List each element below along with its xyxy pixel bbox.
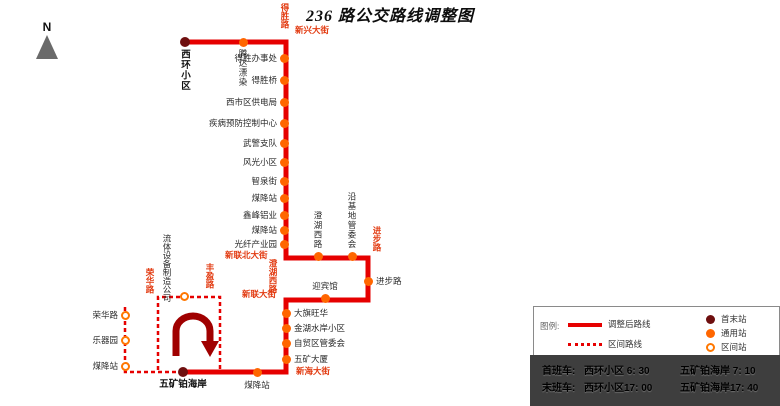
station-label: 煤降站 (251, 225, 277, 235)
station-label: 煤降站 (92, 361, 118, 371)
station-dot (280, 139, 289, 148)
station-dot (282, 309, 291, 318)
legend-item-adjusted-route: 调整后路线 (568, 318, 651, 330)
station-dot (280, 119, 289, 128)
terminal-station-dot-icon (706, 315, 715, 324)
station-dot (280, 76, 289, 85)
station-dot (280, 211, 289, 220)
station-label: 西市区供电局 (226, 97, 277, 107)
station-label: 澄湖西路 (312, 211, 323, 249)
street-label: 新兴大街 (295, 25, 329, 35)
legend-label-section-route: 区间路线 (608, 339, 642, 349)
station-dot (282, 355, 291, 364)
legend-label-terminal-station: 首末站 (721, 314, 747, 324)
station-label: 光纤产业园 (234, 239, 277, 249)
legend-label-general-station: 通用站 (721, 328, 747, 338)
legend-label-adjusted-route: 调整后路线 (608, 319, 651, 329)
last-bus-label: 末班车: (542, 379, 584, 394)
station-dot (178, 367, 188, 377)
station-label: 疾病预防控制中心 (209, 118, 277, 128)
station-label: 智泉街 (251, 176, 277, 186)
street-label: 得胜路 (280, 3, 290, 29)
legend-item-terminal-station: 首末站 (706, 313, 747, 325)
uturn-arrow-icon (176, 316, 210, 356)
station-dot (314, 252, 323, 261)
route-map-canvas: 236 路公交路线调整图 N 得胜路新兴大街新联北大街澄湖西路进步路新联大街新海… (0, 0, 780, 406)
station-label: 鑫峰铝业 (243, 210, 277, 220)
station-dot (348, 252, 357, 261)
station-label: 沿基地管委会 (346, 192, 357, 249)
station-label: 五矿铂海岸 (123, 380, 243, 390)
station-label: 金湖水岸小区 (294, 323, 345, 333)
station-dot (121, 362, 130, 371)
station-dot (282, 324, 291, 333)
street-label: 新海大街 (296, 366, 330, 376)
station-dot (280, 177, 289, 186)
station-dot (121, 336, 130, 345)
station-dot (280, 194, 289, 203)
legend-title: 图例: (540, 320, 559, 332)
station-label: 自贸区管委会 (294, 338, 345, 348)
timetable: 首班车: 西环小区 6: 30 五矿铂海岸 7: 10 末班车: 西环小区17:… (530, 355, 780, 406)
station-label: 得胜桥 (251, 75, 277, 85)
timetable-row-first-bus: 首班车: 西环小区 6: 30 五矿铂海岸 7: 10 (542, 362, 780, 377)
first-bus-west-time: 西环小区 6: 30 (584, 362, 680, 377)
street-label: 进步路 (372, 226, 382, 252)
station-label: 大旗旺华 (294, 308, 328, 318)
station-label: 风光小区 (243, 157, 277, 167)
station-label: 西环小区 (179, 49, 190, 91)
station-dot (280, 226, 289, 235)
station-label: 荣华路 (92, 310, 118, 320)
solid-route-swatch-icon (568, 323, 602, 327)
station-dot (280, 54, 289, 63)
uturn-arrowhead-icon (201, 341, 219, 357)
station-label: 煤降站 (251, 193, 277, 203)
station-label: 迎宾馆 (265, 281, 385, 291)
section-station-dot-icon (706, 343, 715, 352)
general-station-dot-icon (706, 329, 715, 338)
station-label: 乐器园 (92, 335, 118, 345)
legend-item-general-station: 通用站 (706, 327, 747, 339)
last-bus-east-time: 五矿铂海岸17: 40 (680, 379, 758, 394)
station-label: 得胜办事处 (234, 53, 277, 63)
street-label: 丰盈路 (205, 263, 215, 289)
station-dot (180, 292, 189, 301)
legend-box: 图例: 调整后路线 区间路线 首末站 通用站 区间站 (533, 306, 780, 357)
timetable-row-last-bus: 末班车: 西环小区17: 00 五矿铂海岸17: 40 (542, 379, 780, 394)
station-dot (239, 38, 248, 47)
first-bus-label: 首班车: (542, 362, 584, 377)
first-bus-east-time: 五矿铂海岸 7: 10 (680, 362, 756, 377)
street-label: 荣华路 (145, 268, 155, 294)
last-bus-west-time: 西环小区17: 00 (584, 379, 680, 394)
legend-item-section-route: 区间路线 (568, 338, 642, 350)
legend-item-section-station: 区间站 (706, 341, 747, 353)
station-dot (282, 339, 291, 348)
station-label: 流体设备制造公司 (160, 234, 173, 290)
station-label: 五矿大厦 (294, 354, 328, 364)
station-dot (121, 311, 130, 320)
station-label: 武警支队 (243, 138, 277, 148)
station-dot (280, 98, 289, 107)
station-dot (280, 240, 289, 249)
legend-label-section-station: 区间站 (721, 342, 747, 352)
street-label: 新联北大街 (225, 250, 268, 260)
dashed-route-swatch-icon (568, 343, 602, 346)
station-dot (321, 294, 330, 303)
station-dot (280, 158, 289, 167)
station-dot (180, 37, 190, 47)
station-dot (253, 368, 262, 377)
